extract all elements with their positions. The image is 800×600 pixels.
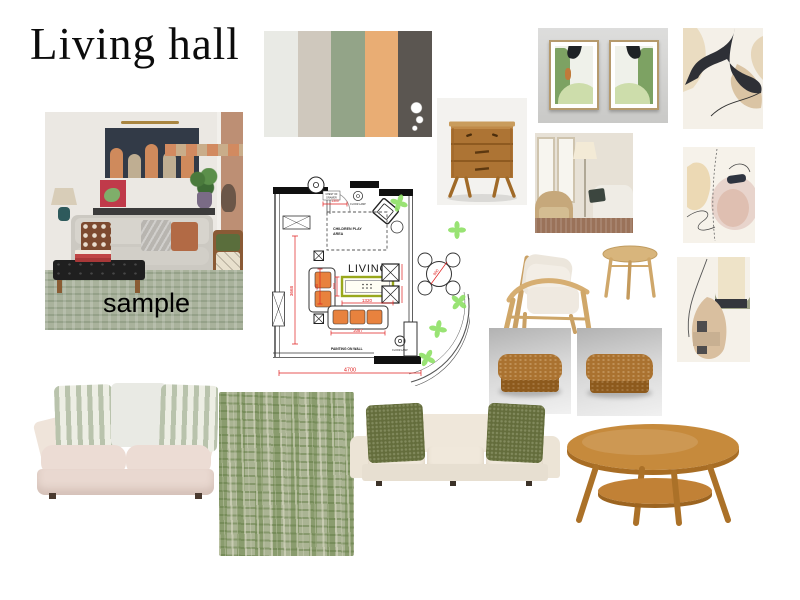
arch-shape xyxy=(128,154,141,178)
boucle-armchair-image xyxy=(493,236,601,336)
dresser-drawing xyxy=(437,98,527,205)
sofa-foot xyxy=(450,481,456,486)
ottoman-image-2 xyxy=(577,328,662,416)
stool-drawing xyxy=(597,242,663,302)
sofa-base xyxy=(37,469,214,495)
framed-print-right xyxy=(609,40,659,110)
olive-pillow-sofa-image xyxy=(350,398,560,490)
wall-art-arches xyxy=(105,128,199,178)
fp-floor-lamp-top-label: FLOOR LAMP xyxy=(350,203,366,206)
sofa-foot xyxy=(376,481,382,486)
striped-pillow-left xyxy=(54,384,114,452)
gray-pillow xyxy=(141,220,171,251)
armchair-drawing xyxy=(493,236,601,336)
palette-swatch-5 xyxy=(398,31,432,137)
sofa-base xyxy=(362,464,548,481)
sofa-foot xyxy=(49,493,56,499)
palette-swatch-4 xyxy=(365,31,399,137)
color-palette xyxy=(264,31,432,137)
olive-pillow-right xyxy=(486,403,546,464)
patterned-pillow xyxy=(81,222,111,252)
sofa-foot xyxy=(526,481,532,486)
fp-console xyxy=(283,216,310,229)
plant-vase xyxy=(197,192,212,209)
dark-green-pillow xyxy=(588,188,606,203)
mood-board: Living hall xyxy=(0,0,800,600)
console-table xyxy=(93,208,215,215)
wood-stool-image xyxy=(597,242,663,302)
arch-shape xyxy=(145,144,158,178)
fp-sofa-bottom-symbol xyxy=(328,306,388,329)
orange-shape xyxy=(565,68,571,80)
table-lamp-base xyxy=(58,207,70,221)
board-title: Living hall xyxy=(30,18,240,70)
floor-lamp-shade xyxy=(573,142,597,159)
small-red-artwork xyxy=(100,180,126,207)
olive-pillow-left xyxy=(366,403,426,464)
floor-plan-drawing: CHEST OF DRAWER 1300 FLOOR LAMP CHILDREN… xyxy=(271,174,470,386)
green-rug-image xyxy=(219,392,354,556)
sculpture xyxy=(221,184,236,212)
palette-swatch-1 xyxy=(264,31,298,137)
palette-swatch-3 xyxy=(331,31,365,137)
abstract-art-3 xyxy=(677,257,750,362)
abstract-green-print xyxy=(615,46,653,104)
fp-window xyxy=(273,292,285,326)
fp-dim-3668: 3668 xyxy=(289,285,294,296)
fp-play-label-1: CHILDREN PLAY xyxy=(333,227,362,231)
ottoman-cushion xyxy=(498,354,562,380)
round-coffee-table-image xyxy=(562,417,745,527)
palette-swatch-2 xyxy=(298,31,332,137)
fp-ceiling-fixture xyxy=(308,177,324,193)
framed-prints-image xyxy=(538,28,668,123)
abstract-art-3-drawing xyxy=(677,257,750,362)
fp-dim-600: 600 xyxy=(333,283,337,289)
dresser-image xyxy=(437,98,527,205)
abstract-art-2-drawing xyxy=(683,147,755,243)
abstract-green-print xyxy=(555,46,593,104)
fp-dim-1320: 1320 xyxy=(362,298,373,303)
fp-dim-2087: 2087 xyxy=(353,328,363,333)
book-stack xyxy=(75,250,111,262)
ottoman-cushion xyxy=(586,354,652,380)
floor-lamp-pole xyxy=(584,157,586,217)
dresser-body xyxy=(449,122,515,179)
coffee-table-drawing xyxy=(562,417,745,527)
arch-shape xyxy=(163,152,176,178)
abstract-art-2 xyxy=(683,147,755,243)
corner-room-photo xyxy=(535,133,633,233)
fp-dim-1300: 1300 xyxy=(331,199,339,203)
fp-painting-label: PAINTING ON WALL xyxy=(331,347,363,351)
fp-floor-lamp-bottom-label: FLOOR LAMP xyxy=(392,349,408,352)
fp-play-area-boundary xyxy=(327,212,387,250)
bench-leg xyxy=(57,280,62,293)
fp-dining-set-symbol xyxy=(418,253,460,295)
fp-side-table-symbol xyxy=(391,221,403,233)
abstract-art-1 xyxy=(683,28,763,129)
fp-floor-lamp-top xyxy=(353,191,362,200)
sample-room-photo: sample xyxy=(45,112,243,330)
brown-rug xyxy=(535,218,633,233)
fp-chest-label-1: CHEST OF xyxy=(325,193,338,196)
leather-bench xyxy=(53,260,145,280)
fp-play-label-2: AREA xyxy=(333,232,344,236)
sofa-foot xyxy=(195,493,202,499)
striped-pillow-sofa-image xyxy=(33,383,218,505)
picture-light xyxy=(121,121,179,124)
arch-shape xyxy=(110,148,123,178)
sample-label: sample xyxy=(103,288,190,319)
fp-dim-450: 450 xyxy=(315,284,319,290)
abstract-art-1-drawing xyxy=(683,28,763,129)
striped-pillow-right xyxy=(159,384,218,452)
framed-print-left xyxy=(549,40,599,110)
floor-plan: CHEST OF DRAWER 1300 FLOOR LAMP CHILDREN… xyxy=(271,174,470,386)
paint-splatter xyxy=(410,101,426,135)
rust-pillow xyxy=(171,222,198,251)
fp-sofa-left-symbol xyxy=(309,268,335,312)
table-lamp-shade xyxy=(51,188,77,205)
fp-dim-4700: 4700 xyxy=(344,368,356,374)
